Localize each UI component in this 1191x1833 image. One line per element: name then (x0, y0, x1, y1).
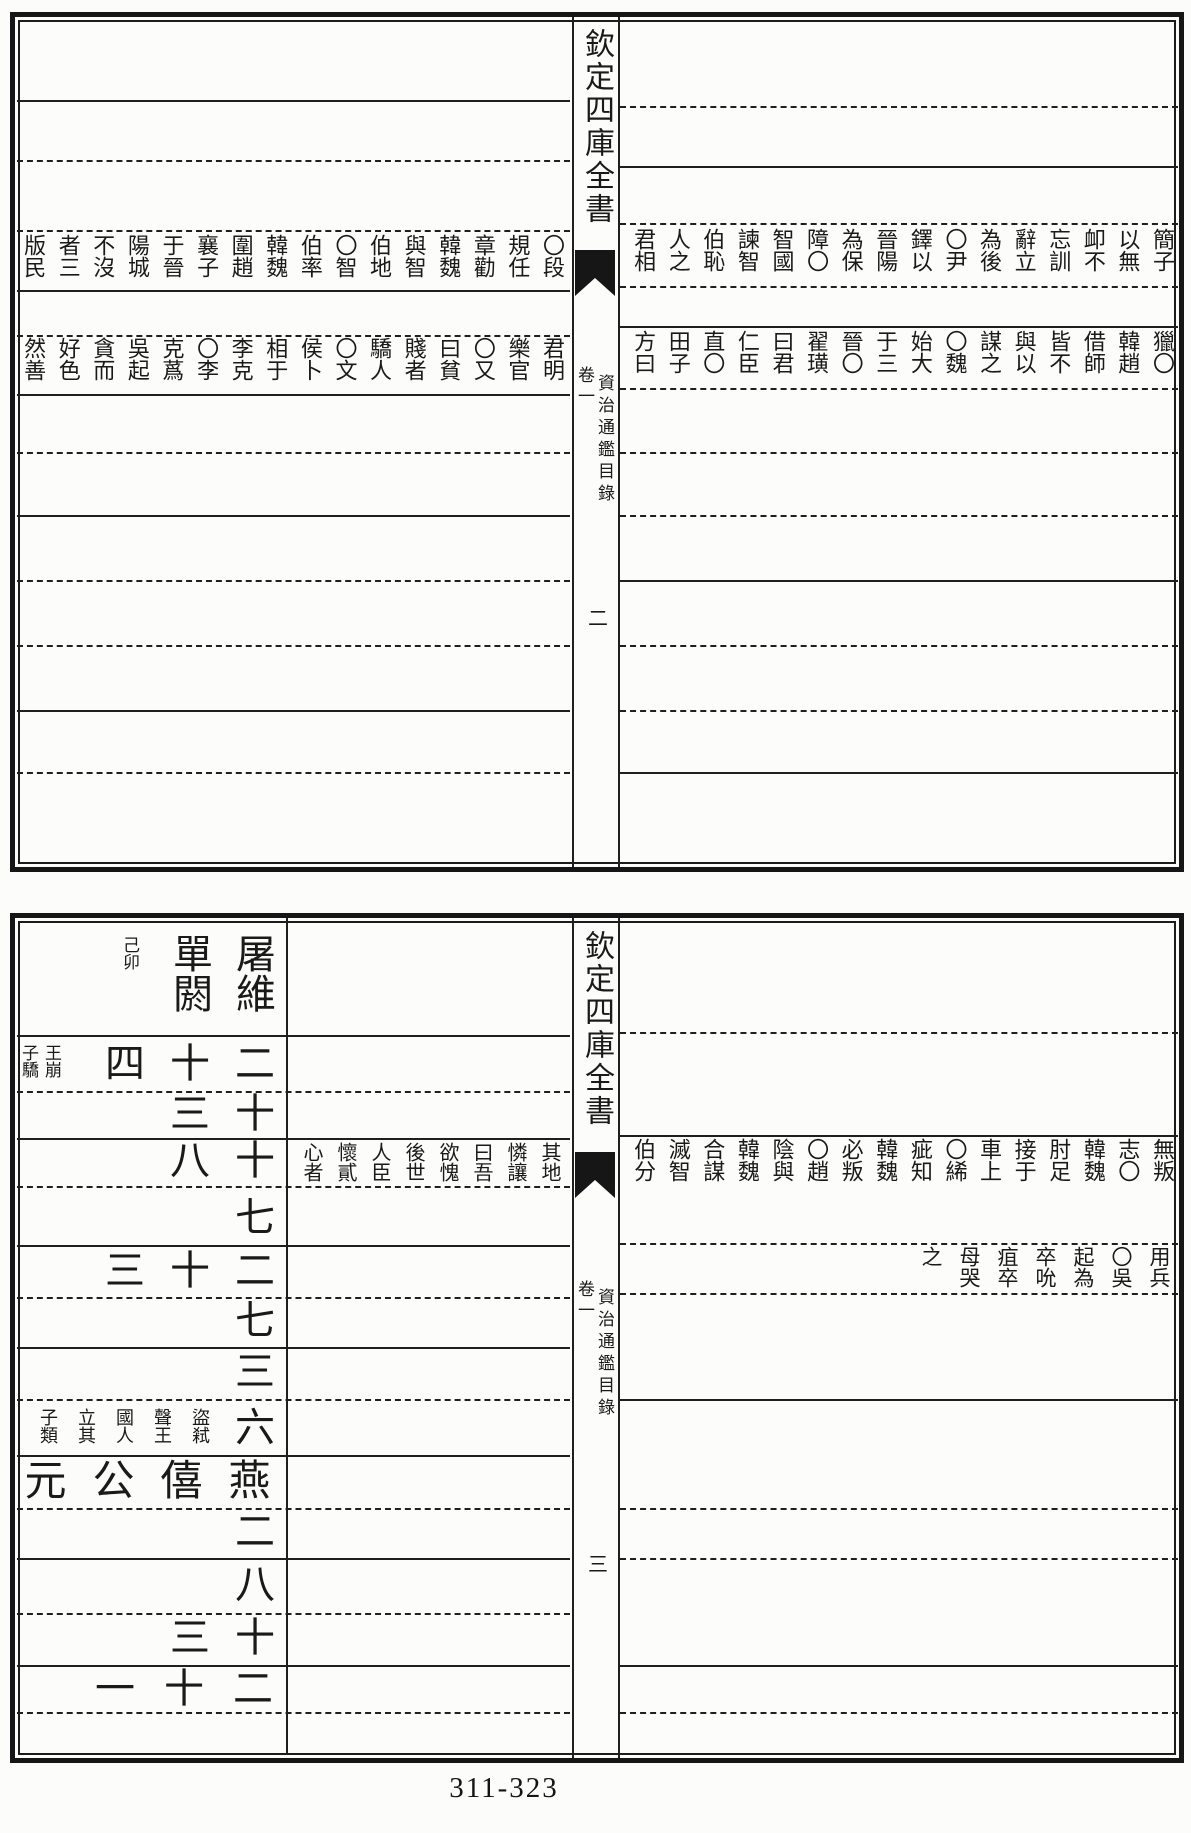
grid-line (17, 1138, 570, 1140)
grid-line (17, 645, 570, 647)
grid-line (17, 1035, 570, 1037)
grid-line (620, 223, 1178, 225)
grid-line (17, 394, 570, 396)
bottom-spine-banner: 欽定四庫全書 (571, 926, 619, 1131)
grid-line (17, 290, 570, 292)
entry-text-top-left-2: 君明樂官〇又曰貧賤者驕人〇文侯卜相于李克〇李克蔿吳起貪而好色然善 (15, 337, 568, 387)
year-name-row1: 屠維單閼 (157, 933, 283, 1025)
top-spine-page-number: 二 (578, 602, 618, 631)
grid-line (620, 326, 1178, 328)
grid-line (620, 1293, 1178, 1295)
grid-line (17, 160, 570, 162)
year-count-row4: 十八 (153, 1139, 283, 1183)
entry-text-top-left-1: 〇段規任章勸韓魏與智伯地〇智伯率韓魏圍趙襄子于晉陽城不沒者三版民 (15, 234, 568, 284)
grid-line (620, 645, 1178, 647)
entry-text-top-right-2: 獵〇韓趙借師皆不與以謀之〇魏始大于三晉〇翟璜曰君仁臣直〇田子方曰 (622, 330, 1178, 382)
grid-line (620, 710, 1178, 712)
grid-line (17, 1091, 570, 1093)
grid-line (620, 1243, 1178, 1245)
grid-line (620, 452, 1178, 454)
year-count-row9: 六 (218, 1406, 283, 1452)
grid-line (17, 580, 570, 582)
grid-line (17, 1712, 570, 1714)
grid-line (17, 1558, 570, 1560)
grid-line (620, 388, 1178, 390)
year-count-row8: 三 (218, 1350, 283, 1396)
bottom-spine-page-number: 三 (578, 1548, 618, 1577)
top-spine-volume: 卷一 (573, 366, 595, 436)
grid-line (17, 1455, 570, 1457)
year-count-row13: 十三 (153, 1616, 283, 1660)
grid-line (17, 1399, 570, 1401)
fishtail-ornament (575, 1152, 615, 1200)
year-count-row14: 二十一 (76, 1667, 283, 1711)
grid-line (17, 1613, 570, 1615)
grid-line (620, 1712, 1178, 1714)
page-number-label: 311-323 (404, 1772, 604, 1805)
entry-text-bottom-left: 其地憐讓曰吾欲愧後世人臣懷貳心者 (295, 1142, 567, 1186)
grid-line (17, 1245, 570, 1247)
year-count-row12: 八 (218, 1563, 283, 1609)
grid-line (620, 1558, 1178, 1560)
top-spine-title: 資治通鑑目錄 (593, 374, 615, 522)
grid-line (17, 452, 570, 454)
grid-line (17, 1186, 570, 1188)
grid-line (17, 1508, 570, 1510)
year-count-row5: 七 (218, 1196, 283, 1242)
grid-line (620, 1508, 1178, 1510)
grid-line (620, 106, 1178, 108)
grid-line (17, 515, 570, 517)
grid-line (620, 166, 1178, 168)
fishtail-ornament (575, 250, 615, 298)
grid-line (17, 100, 570, 102)
grid-line (17, 710, 570, 712)
year-count-row3: 十三 (153, 1092, 283, 1136)
grid-line (620, 1135, 1178, 1137)
grid-line (17, 1347, 570, 1349)
scanned-book-page: 欽定四庫全書 卷一 資治通鑑目錄 二 簡子以無卹不忘訓辭立為後〇尹鐸以晉陽為保障… (0, 0, 1191, 1833)
year-count-row6: 二十三 (88, 1249, 283, 1293)
annotation-row9: 盜弒聲王國人立其子類 (26, 1408, 218, 1452)
grid-line (620, 1399, 1178, 1401)
year-count-row11: 二 (218, 1510, 283, 1556)
grid-line (620, 286, 1178, 288)
grid-line (17, 1297, 570, 1299)
bottom-left-column-divider (286, 918, 288, 1754)
entry-text-top-right-1: 簡子以無卹不忘訓辭立為後〇尹鐸以晉陽為保障〇智國諫智伯恥人之君相 (622, 228, 1178, 280)
entry-text-bottom-right-1: 無叛志〇韓魏肘足接于車上〇絺疵知韓魏必叛〇趙陰與韓魏合謀滅智伯分 (622, 1138, 1178, 1190)
grid-line (620, 580, 1178, 582)
grid-line (620, 772, 1178, 774)
annotation-row2: 王崩子驕 (16, 1044, 62, 1084)
grid-line (620, 1665, 1178, 1667)
reign-start-row10: 燕僖公元 (8, 1458, 280, 1504)
grid-line (620, 515, 1178, 517)
entry-text-bottom-right-2: 用兵〇吳起為卒吮疽卒母哭之 (898, 1246, 1178, 1292)
top-spine-banner: 欽定四庫全書 (571, 24, 619, 229)
year-count-row7: 七 (218, 1299, 283, 1345)
grid-line (620, 1032, 1178, 1034)
year-cycle-note-row1: 己卯 (114, 936, 140, 980)
bottom-spine-title: 資治通鑑目錄 (593, 1288, 615, 1436)
bottom-spine-volume: 卷一 (573, 1280, 595, 1350)
year-count-row2: 二十四 (88, 1042, 283, 1086)
grid-line (17, 230, 570, 232)
grid-line (17, 772, 570, 774)
